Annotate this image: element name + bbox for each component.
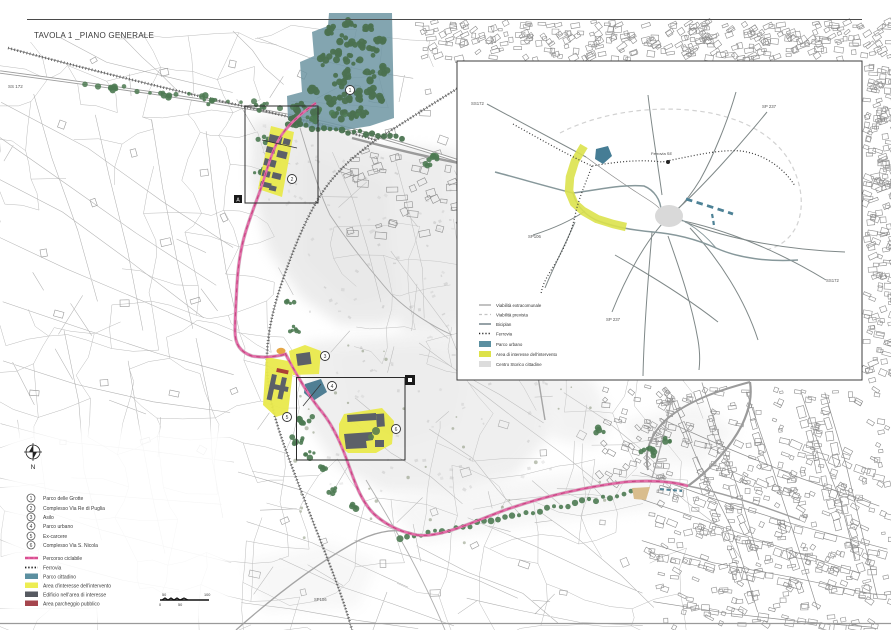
- svg-text:Parco urbano: Parco urbano: [496, 342, 523, 347]
- svg-text:5: 5: [286, 415, 289, 421]
- svg-text:Centro Storico cittadine: Centro Storico cittadine: [496, 362, 542, 367]
- svg-text:5: 5: [30, 534, 33, 540]
- svg-text:1: 1: [30, 496, 33, 502]
- svg-text:Complesso Via Re di Puglia: Complesso Via Re di Puglia: [43, 506, 105, 512]
- svg-text:SS 172: SS 172: [8, 84, 23, 89]
- svg-text:2: 2: [30, 506, 33, 512]
- svg-text:50: 50: [178, 603, 182, 607]
- svg-text:Ex-carcere: Ex-carcere: [43, 534, 67, 540]
- svg-text:SS172: SS172: [471, 101, 485, 106]
- svg-text:6: 6: [30, 543, 33, 549]
- svg-text:Area parcheggio pubblico: Area parcheggio pubblico: [43, 602, 100, 608]
- svg-text:50: 50: [162, 593, 166, 597]
- svg-text:100: 100: [204, 593, 210, 597]
- svg-text:4: 4: [30, 524, 33, 530]
- svg-text:Parco delle Grotte: Parco delle Grotte: [43, 496, 84, 502]
- svg-text:1: 1: [349, 88, 352, 94]
- svg-text:3: 3: [324, 354, 327, 360]
- svg-text:Area di interesse dell'interve: Area di interesse dell'intervento: [496, 352, 558, 357]
- svg-text:2: 2: [291, 177, 294, 183]
- svg-text:Ferrovia: Ferrovia: [496, 332, 513, 337]
- svg-text:Viabilità extracomunale: Viabilità extracomunale: [496, 303, 542, 308]
- svg-text:Parco cittadino: Parco cittadino: [43, 575, 76, 581]
- svg-text:SP106: SP106: [528, 234, 542, 239]
- svg-text:Edificio nell'area di interess: Edificio nell'area di interesse: [43, 593, 106, 599]
- svg-text:Asilo: Asilo: [43, 515, 54, 521]
- svg-text:SP106: SP106: [314, 597, 327, 602]
- svg-text:Area d'interesse dell'interven: Area d'interesse dell'intervento: [43, 584, 111, 590]
- svg-text:Biciplan: Biciplan: [496, 322, 512, 327]
- svg-text:Parco urbano: Parco urbano: [43, 524, 73, 530]
- svg-text:0: 0: [159, 603, 161, 607]
- svg-text:N: N: [31, 464, 36, 471]
- svg-text:TAVOLA 1 _PIANO GENERALE: TAVOLA 1 _PIANO GENERALE: [34, 31, 155, 40]
- svg-text:Ferrovia: Ferrovia: [43, 566, 62, 572]
- svg-text:SP 237: SP 237: [606, 317, 621, 322]
- svg-text:Percorso ciclabile: Percorso ciclabile: [43, 556, 82, 562]
- svg-text:Ferrovia SE: Ferrovia SE: [651, 151, 672, 156]
- svg-text:Viabilità prevista: Viabilità prevista: [496, 313, 528, 318]
- svg-text:3: 3: [30, 515, 33, 521]
- svg-text:6: 6: [395, 427, 398, 433]
- svg-text:SS172: SS172: [826, 278, 840, 283]
- svg-text:Complesso Via S. Nicola: Complesso Via S. Nicola: [43, 543, 98, 549]
- svg-text:4: 4: [331, 384, 334, 390]
- svg-text:SP 237: SP 237: [762, 104, 777, 109]
